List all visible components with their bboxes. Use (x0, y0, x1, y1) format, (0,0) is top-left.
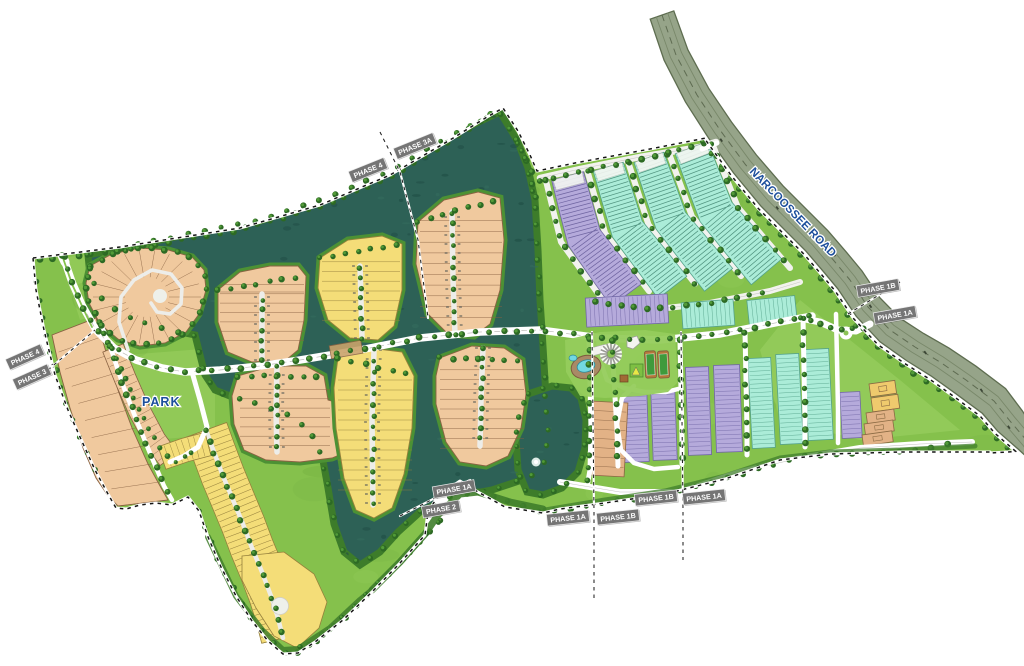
svg-text:PARK: PARK (142, 395, 181, 409)
